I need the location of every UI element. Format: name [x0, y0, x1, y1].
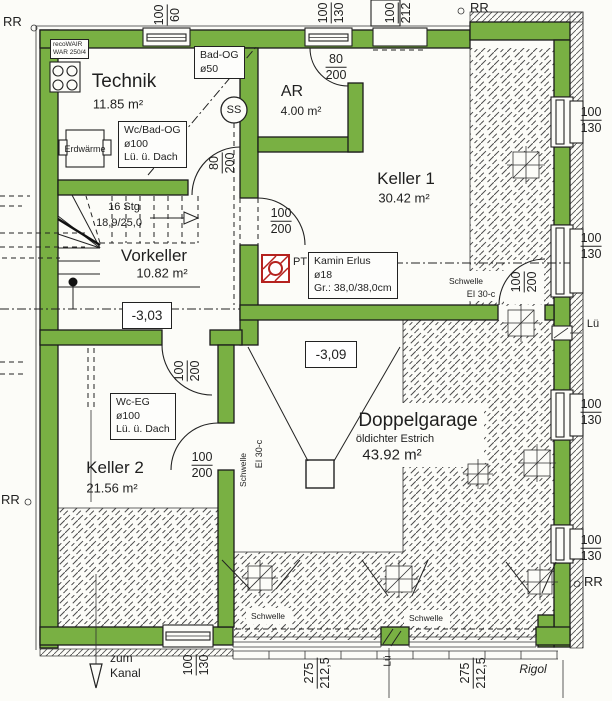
dim-value: 212 — [400, 3, 413, 24]
level-vorkeller: -3,03 — [122, 302, 172, 329]
dim-garage-door-1: 275212,5 — [303, 657, 332, 688]
room-area-garage: 43.92 m² — [362, 447, 421, 464]
bad-og-line2: ø50 — [200, 63, 239, 77]
dim-value: 275 — [459, 663, 472, 684]
bad-og-box: Bad-OG ø50 — [194, 46, 245, 79]
dim-value: 80 — [208, 156, 221, 170]
dim-value: 100 — [192, 451, 213, 464]
dim-keller2-top-door: 100200 — [173, 361, 202, 382]
wc-bad-og-line1: Wc/Bad-OG — [124, 124, 181, 138]
room-area-vorkeller: 10.82 m² — [136, 266, 187, 281]
bad-og-line1: Bad-OG — [200, 49, 239, 63]
wc-bad-og-line3: Lü. ü. Dach — [124, 151, 181, 165]
dim-value: 200 — [271, 223, 292, 236]
rigol-channel — [233, 648, 563, 698]
dim-value: 100 — [271, 207, 292, 220]
schwelle-label-keller2: Schwelle — [238, 453, 248, 487]
lue-label-right: Lü — [587, 318, 599, 330]
dim-top-door-100-212: 100212 — [384, 3, 413, 24]
room-name-ar: AR — [281, 83, 303, 101]
dim-value: 200 — [326, 69, 347, 82]
dim-top-window-100-60: 10060 — [153, 5, 182, 26]
wc-bad-og-line2: ø100 — [124, 138, 181, 152]
room-name-keller1: Keller 1 — [377, 169, 435, 189]
recovair-unit — [50, 62, 80, 92]
dim-value: 130 — [333, 3, 346, 24]
dim-value: 200 — [192, 467, 213, 480]
zum-kanal-line2: Kanal — [110, 666, 141, 680]
dim-value: 80 — [329, 53, 343, 66]
dim-value: 212,5 — [475, 657, 488, 688]
level-garage: -3,09 — [305, 341, 357, 368]
stair-ratio-label: 18,9/25,0 — [96, 217, 142, 229]
dim-value: 130 — [581, 122, 602, 135]
basement-floor-plan: Technik 11.85 m² AR 4.00 m² Keller 1 30.… — [0, 0, 612, 701]
room-area-keller2: 21.56 m² — [86, 481, 137, 496]
zum-kanal-line1: zum — [110, 651, 133, 665]
dim-value: 100 — [182, 655, 195, 676]
stair-steps-label: 16 Stg — [108, 201, 140, 213]
room-area-technik: 11.85 m² — [93, 97, 143, 112]
dim-value: 60 — [169, 8, 182, 22]
dim-bottom-window: 100130 — [182, 655, 211, 676]
level-value: -3,09 — [316, 347, 347, 362]
dim-ar-door: 80200 — [326, 53, 347, 82]
dim-keller2-side-door: 100200 — [192, 451, 213, 480]
dim-value: 100 — [317, 3, 330, 24]
level-value: -3,03 — [132, 308, 163, 323]
dim-garage-keller1-door: 100200 — [510, 272, 539, 293]
ei30-label-keller2: EI 30-c — [254, 440, 264, 469]
room-name-keller2: Keller 2 — [86, 458, 144, 478]
recovair-line1: recoWAIR — [53, 41, 86, 49]
room-name-technik: Technik — [92, 71, 156, 93]
dim-value: 100 — [153, 5, 166, 26]
dim-value: 130 — [581, 248, 602, 261]
dim-technik-door: 80200 — [208, 153, 237, 174]
dim-vorkeller-keller1-door: 100200 — [271, 207, 292, 236]
dim-value: 212,5 — [319, 657, 332, 688]
dim-value: 275 — [303, 663, 316, 684]
kamin-box: Kamin Erlus ø18 Gr.: 38,0/38,0cm — [308, 252, 398, 299]
kamin-line2: ø18 — [314, 269, 392, 283]
dim-value: 100 — [173, 361, 186, 382]
dim-value: 100 — [581, 232, 602, 245]
rigol-label: Rigol — [519, 662, 546, 676]
wc-eg-line3: Lü. ü. Dach — [116, 423, 170, 437]
dim-right-window-3: 100130 — [581, 398, 602, 427]
recovair-line2: WAR 250/4 — [53, 49, 86, 57]
room-name-vorkeller: Vorkeller — [121, 246, 187, 266]
kamin-symbol — [262, 255, 289, 282]
rr-label-top-left: RR — [3, 14, 22, 29]
schwelle-label-right: Schwelle — [449, 276, 483, 286]
room-area-ar: 4.00 m² — [281, 104, 322, 118]
dim-right-window-2: 100130 — [581, 232, 602, 261]
dim-top-window-100-130: 100130 — [317, 3, 346, 24]
dim-value: 200 — [189, 361, 202, 382]
kamin-line1: Kamin Erlus — [314, 255, 392, 269]
wc-bad-og-box: Wc/Bad-OG ø100 Lü. ü. Dach — [118, 121, 187, 168]
dim-value: 100 — [581, 106, 602, 119]
lue-label-bottom: Lü — [383, 655, 394, 666]
wc-eg-line1: Wc-EG — [116, 396, 170, 410]
dim-right-window-1: 100130 — [581, 106, 602, 135]
dim-value: 200 — [526, 272, 539, 293]
room-name-garage: Doppelgarage — [358, 410, 477, 432]
dim-value: 130 — [581, 550, 602, 563]
recovair-label-box: recoWAIR WAR 250/4 — [50, 39, 89, 59]
wc-eg-line2: ø100 — [116, 410, 170, 424]
dim-right-window-4: 100130 — [581, 534, 602, 563]
wc-eg-box: Wc-EG ø100 Lü. ü. Dach — [110, 393, 176, 440]
ss-label: SS — [227, 104, 242, 116]
dim-value: 100 — [384, 3, 397, 24]
kamin-line3: Gr.: 38,0/38,0cm — [314, 282, 392, 296]
rr-label-bottom-right: RR — [584, 574, 603, 589]
dim-garage-door-2: 275212,5 — [459, 657, 488, 688]
pt-label: PT — [293, 256, 307, 268]
rr-label-left-bottom: RR — [1, 492, 20, 507]
schwelle-label-garage-2: Schwelle — [409, 613, 443, 623]
dim-value: 100 — [510, 272, 523, 293]
room-note-garage: öldichter Estrich — [356, 433, 434, 445]
room-area-keller1: 30.42 m² — [378, 191, 429, 206]
schwelle-label-garage-1: Schwelle — [251, 611, 285, 621]
dim-value: 100 — [581, 398, 602, 411]
rr-label-top-right: RR — [470, 0, 489, 15]
dim-value: 130 — [581, 414, 602, 427]
ei30-label-right: EI 30-c — [467, 289, 496, 299]
dim-value: 200 — [224, 153, 237, 174]
dim-value: 100 — [581, 534, 602, 547]
erdwaerme-label: Erdwärme — [64, 144, 105, 154]
dim-value: 130 — [198, 655, 211, 676]
